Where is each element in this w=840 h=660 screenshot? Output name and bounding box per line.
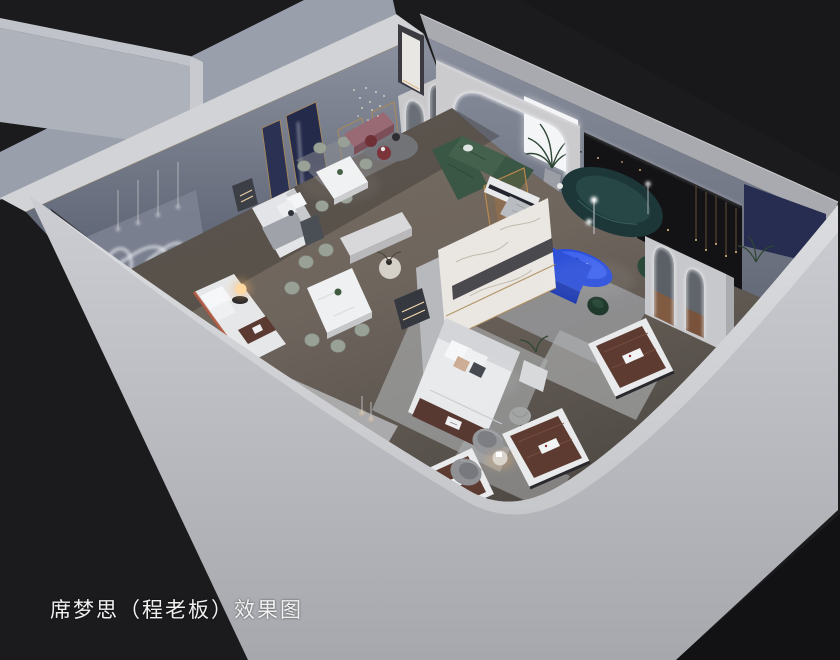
lamp (360, 411, 363, 414)
lamp (369, 417, 372, 420)
table-decor (496, 452, 502, 457)
side-table (392, 133, 400, 141)
door (402, 32, 420, 92)
showroom-render: 席梦思（程老板）效果图 (0, 0, 840, 660)
render-caption: 席梦思（程老板）效果图 (50, 594, 303, 624)
sphere-lamp (236, 284, 247, 295)
sofa-pillow (463, 145, 473, 152)
table-plant (335, 289, 342, 296)
showroom-render-svg (0, 0, 840, 660)
sculpture (557, 183, 563, 189)
pouf (365, 135, 377, 147)
woven-pouf (509, 407, 531, 425)
